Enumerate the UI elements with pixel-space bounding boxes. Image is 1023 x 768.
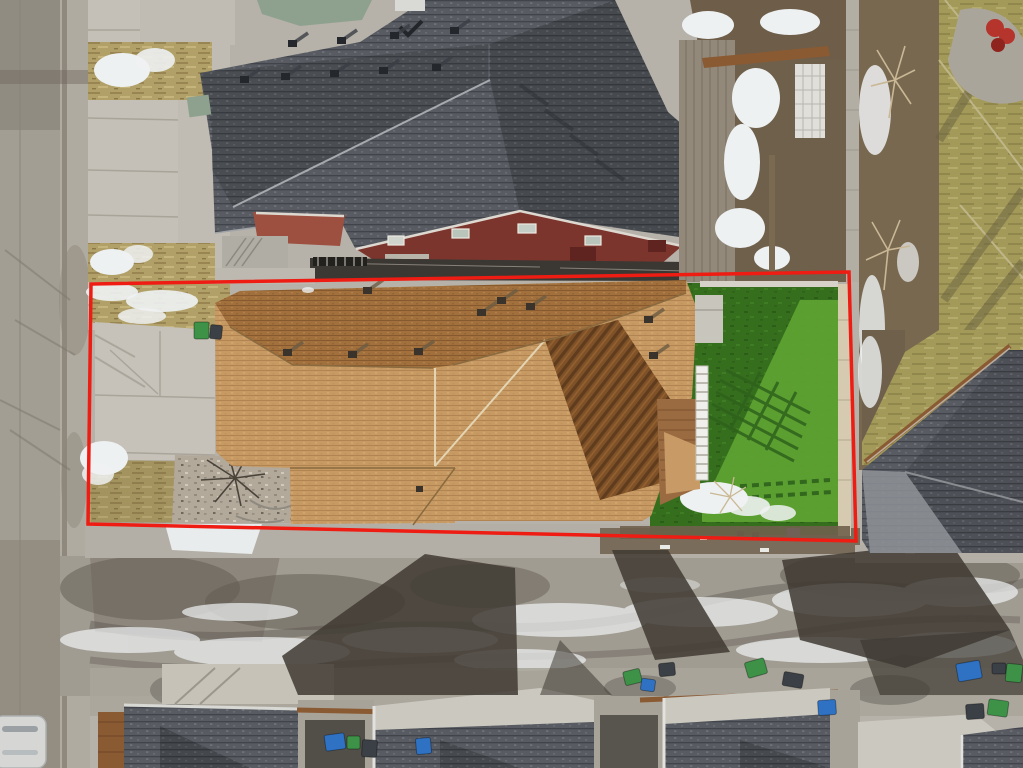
waste-bin-blue (640, 678, 656, 692)
waste-bin-dark (658, 662, 675, 677)
roof-vent (379, 67, 388, 74)
roof-vent (432, 64, 441, 71)
utility-structure (222, 236, 288, 268)
patio-table (695, 295, 723, 343)
roof-vent (390, 32, 399, 39)
roof-vent (337, 37, 346, 44)
roof-vent (477, 309, 486, 316)
aerial-photo-canvas (0, 0, 1023, 768)
roof-vent (450, 27, 459, 34)
roof-vent (497, 297, 506, 304)
roof-vent (240, 76, 249, 83)
chimney-box (570, 247, 596, 262)
roof-vent (644, 316, 653, 323)
aerial-photo (0, 0, 1023, 768)
roof-vent (281, 73, 290, 80)
subject-property (80, 280, 851, 539)
right-neighbor-lot (858, 330, 1023, 553)
roof-vent (348, 351, 357, 358)
driveway (95, 322, 215, 463)
waste-bin-dark (209, 324, 222, 339)
waste-bin-green (194, 322, 209, 339)
waste-bin-dark (782, 671, 804, 688)
waste-bin-green (987, 699, 1009, 718)
waste-bin-dark (965, 703, 984, 719)
fence-line (846, 0, 859, 282)
roof-vent (283, 349, 292, 356)
wood-fence (98, 712, 124, 768)
roof-vent (649, 352, 658, 359)
roof-vent (414, 348, 423, 355)
white-car (0, 716, 46, 768)
roof-vent (363, 287, 372, 294)
waste-bin-blue (415, 737, 431, 754)
waste-bin-blue (817, 699, 836, 715)
waste-bin-green (1005, 663, 1023, 683)
waste-bin-dark (361, 739, 377, 757)
roof-vent (288, 40, 297, 47)
waste-bin-dark (992, 663, 1006, 674)
waste-bin-blue (956, 660, 983, 682)
waste-bin-blue (324, 733, 346, 752)
roof-vent (526, 303, 535, 310)
waste-bin-green (347, 736, 360, 749)
fence-top-rail (700, 281, 838, 287)
roof-vent (330, 70, 339, 77)
